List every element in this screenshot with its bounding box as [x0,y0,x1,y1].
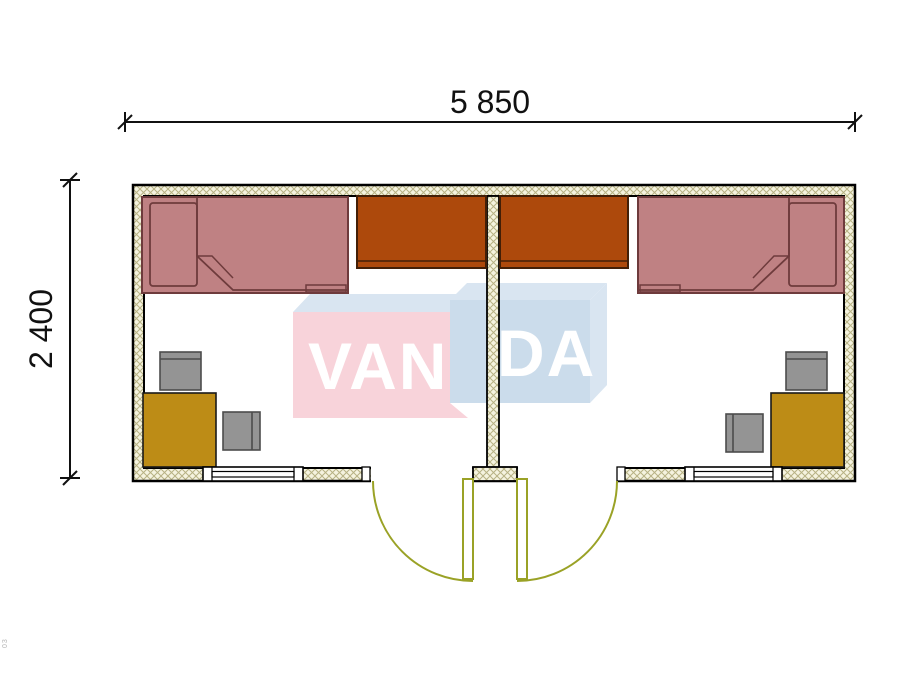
watermark-text-van: VAN [308,329,448,403]
door-leaf-left [463,479,473,579]
door-swing-arc-left [373,481,473,581]
window-glass [212,472,294,478]
watermark-pink-top-bevel [293,294,467,312]
bed-left [142,197,348,293]
window-left [203,467,303,481]
left-dimension-label: 2 400 [23,289,59,369]
top-dimension: 5 850 [118,84,862,132]
watermark: VAN DA [293,283,607,418]
top-dimension-label: 5 850 [450,84,530,120]
desk-left [143,393,216,467]
chair-left-side [223,412,260,450]
watermark-blue-top-bevel [450,283,607,300]
window-right [685,467,782,481]
watermark-text-da: DA [497,316,596,390]
partition-wall-pier [473,467,517,481]
door-jamb [362,467,370,481]
door-opening [518,464,617,484]
chair-right-top [786,352,827,390]
chair-right-side [726,414,763,452]
wardrobe-left [357,196,486,268]
left-dimension: 2 400 [23,173,80,485]
chair-left-top [160,352,201,390]
door-left [362,464,473,581]
door-leaf-right [517,479,527,579]
window-glass [694,472,773,478]
wardrobe-right [500,196,628,268]
door-jamb [617,467,625,481]
bed-right [638,197,844,293]
partition-wall [487,196,499,468]
door-opening [371,464,472,484]
corner-note: 03 [2,638,9,648]
door-right [517,464,625,581]
floor-plan-canvas: 5 850 2 400 VAN DA [0,0,924,700]
door-swing-arc-right [517,481,617,581]
floor-plan-page: 5 850 2 400 VAN DA [0,0,924,700]
desk-right [771,393,844,467]
